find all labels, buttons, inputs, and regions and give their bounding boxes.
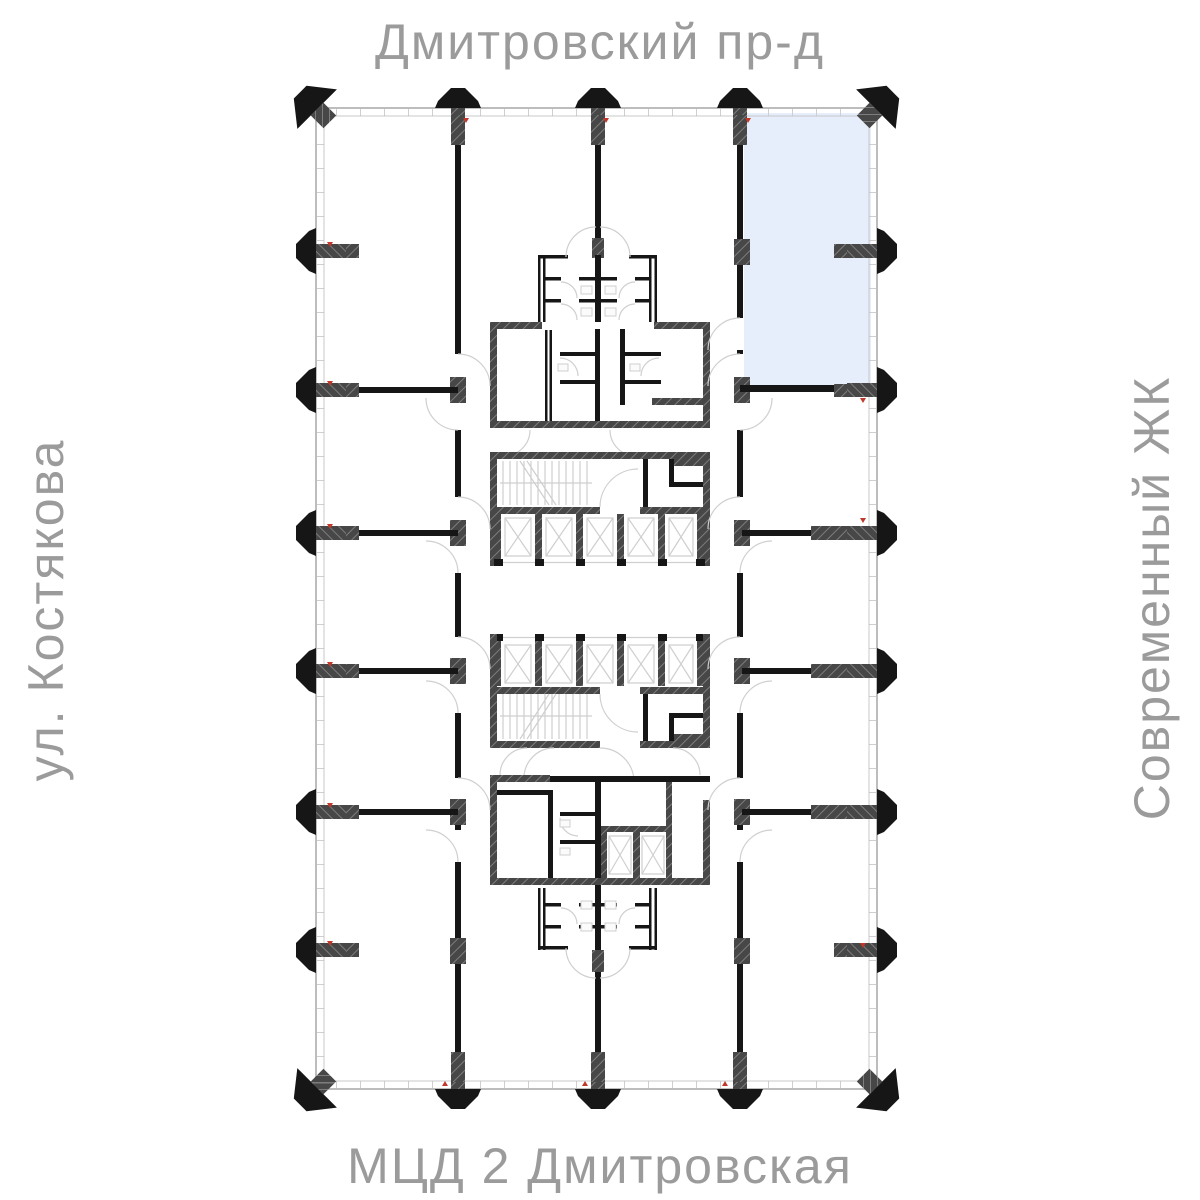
stair-core-upper: [490, 452, 710, 566]
elevator-bank-upper: [494, 514, 705, 566]
elevator-bank-lower: [494, 634, 705, 686]
floor-plan-page: Дмитровский пр-д МЦД 2 Дмитровская ул. К…: [0, 0, 1200, 1200]
service-core-lower: [490, 748, 710, 885]
floor-plan: [0, 0, 1200, 1200]
service-core-upper: [490, 322, 710, 456]
